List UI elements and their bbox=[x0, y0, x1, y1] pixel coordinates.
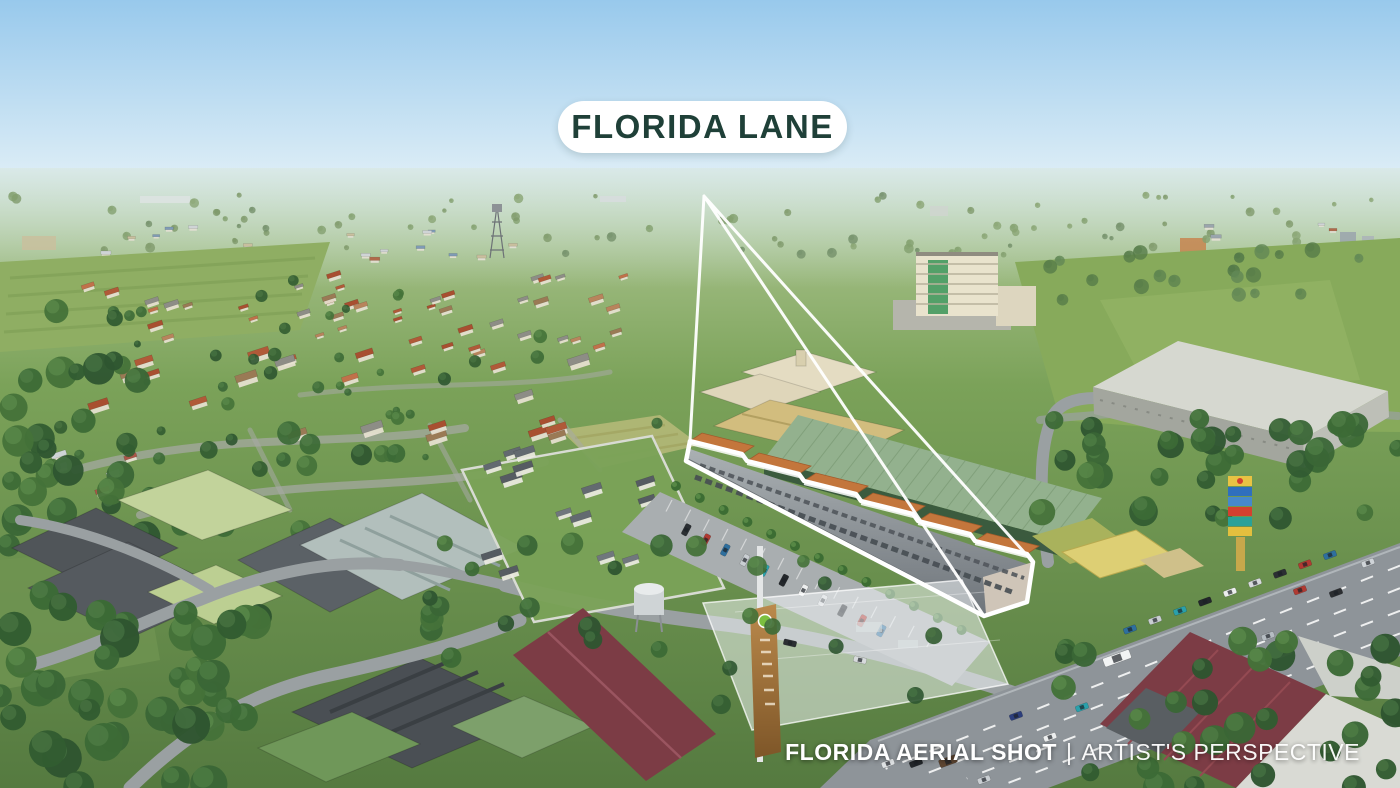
tree-highlight bbox=[80, 700, 92, 712]
tree-highlight bbox=[313, 382, 320, 389]
tree-highlight bbox=[1332, 202, 1335, 205]
tree-highlight bbox=[253, 462, 262, 471]
tree-highlight bbox=[2, 395, 17, 410]
tree-highlight bbox=[199, 661, 217, 679]
tree-highlight bbox=[1246, 208, 1251, 213]
tree-highlight bbox=[1031, 500, 1046, 515]
tree-highlight bbox=[318, 226, 323, 231]
tree-highlight bbox=[256, 290, 263, 297]
tree-highlight bbox=[175, 708, 196, 729]
caption-subtitle: ARTIST'S PERSPECTIVE bbox=[1081, 739, 1360, 766]
caption-separator: | bbox=[1066, 739, 1072, 766]
tree-highlight bbox=[652, 642, 661, 651]
tree-highlight bbox=[917, 201, 921, 205]
tree-highlight bbox=[828, 248, 833, 253]
tree-highlight bbox=[1344, 723, 1359, 738]
tree-highlight bbox=[607, 233, 612, 238]
tree-highlight bbox=[749, 557, 760, 568]
tree-highlight bbox=[201, 442, 211, 452]
tree-highlight bbox=[375, 446, 384, 455]
tree-highlight bbox=[392, 412, 399, 419]
tree-highlight bbox=[1056, 451, 1068, 463]
tree-highlight bbox=[915, 248, 918, 251]
tree-highlight bbox=[1235, 253, 1241, 259]
tree-highlight bbox=[982, 234, 985, 237]
tree-highlight bbox=[1355, 254, 1360, 259]
house bbox=[1211, 235, 1222, 241]
tree-highlight bbox=[880, 192, 884, 196]
tree-highlight bbox=[108, 311, 117, 320]
tree-highlight bbox=[1369, 198, 1371, 200]
tree-highlight bbox=[1206, 506, 1215, 515]
tree-highlight bbox=[377, 369, 381, 373]
location-label-text: FLORIDA LANE bbox=[571, 108, 833, 146]
tree-highlight bbox=[1013, 229, 1017, 233]
location-label-pill: FLORIDA LANE bbox=[558, 101, 847, 153]
tree-highlight bbox=[1169, 275, 1176, 282]
tree-highlight bbox=[1068, 224, 1071, 227]
tree-highlight bbox=[1362, 667, 1374, 679]
tree-highlight bbox=[1163, 222, 1166, 225]
tree-highlight bbox=[1161, 432, 1171, 442]
tree-highlight bbox=[1186, 777, 1197, 788]
tree-highlight bbox=[1306, 243, 1315, 252]
tree-highlight bbox=[772, 236, 775, 239]
tree-highlight bbox=[1087, 275, 1094, 282]
tree-highlight bbox=[55, 421, 62, 428]
tree-highlight bbox=[532, 351, 539, 358]
tree-highlight bbox=[249, 207, 253, 211]
tree-highlight bbox=[219, 382, 225, 388]
tree-highlight bbox=[778, 241, 782, 245]
tree-highlight bbox=[1135, 280, 1143, 288]
tree-highlight bbox=[211, 350, 217, 356]
tree-highlight bbox=[393, 407, 397, 411]
tree-highlight bbox=[1275, 250, 1280, 255]
tree-highlight bbox=[2, 706, 16, 720]
tree-highlight bbox=[298, 456, 309, 467]
tree-highlight bbox=[518, 536, 529, 547]
tree-highlight bbox=[729, 214, 734, 219]
tree-highlight bbox=[1233, 288, 1241, 296]
house bbox=[153, 235, 160, 239]
tree-highlight bbox=[713, 696, 724, 707]
house bbox=[416, 246, 425, 251]
tree-highlight bbox=[1232, 271, 1239, 278]
tree-highlight bbox=[466, 562, 474, 570]
tree-highlight bbox=[279, 422, 292, 435]
tree-highlight bbox=[1001, 252, 1004, 255]
tree-highlight bbox=[223, 216, 226, 219]
tree-highlight bbox=[263, 225, 267, 229]
tree-highlight bbox=[1056, 645, 1067, 656]
tree-highlight bbox=[335, 221, 339, 225]
tree-highlight bbox=[110, 689, 127, 706]
tree-highlight bbox=[1228, 265, 1235, 272]
tree-highlight bbox=[515, 194, 520, 199]
tree-highlight bbox=[499, 616, 508, 625]
tree-highlight bbox=[1391, 441, 1400, 450]
tree-highlight bbox=[1288, 451, 1303, 466]
tree-highlight bbox=[443, 209, 445, 211]
tree-highlight bbox=[342, 305, 347, 310]
tree-highlight bbox=[1167, 692, 1179, 704]
tree-highlight bbox=[48, 358, 65, 375]
tree-highlight bbox=[175, 602, 188, 615]
tree-highlight bbox=[20, 479, 36, 495]
tree-highlight bbox=[1198, 471, 1208, 481]
tree-highlight bbox=[797, 250, 802, 255]
tree-highlight bbox=[785, 209, 789, 213]
tree-highlight bbox=[1231, 195, 1233, 197]
tree-highlight bbox=[277, 453, 285, 461]
tree-highlight bbox=[1230, 628, 1246, 644]
tree-highlight bbox=[1082, 218, 1085, 221]
tree-highlight bbox=[148, 698, 167, 717]
house bbox=[128, 236, 136, 240]
tree-highlight bbox=[103, 620, 125, 642]
tree-highlight bbox=[521, 598, 532, 609]
tree-highlight bbox=[215, 209, 218, 212]
tree-highlight bbox=[222, 398, 229, 405]
tree-highlight bbox=[190, 199, 195, 204]
tree-highlight bbox=[96, 646, 110, 660]
tree-highlight bbox=[70, 364, 79, 373]
tree-highlight bbox=[1134, 497, 1147, 510]
tree-highlight bbox=[1130, 709, 1142, 721]
tree-highlight bbox=[227, 434, 234, 441]
tree-highlight bbox=[55, 457, 72, 474]
tree-highlight bbox=[265, 367, 272, 374]
tree-highlight bbox=[146, 243, 151, 248]
tree-highlight bbox=[137, 307, 143, 313]
tree-highlight bbox=[51, 594, 67, 610]
tree-highlight bbox=[1084, 433, 1097, 446]
tree-highlight bbox=[345, 389, 349, 393]
tree-highlight bbox=[352, 445, 364, 457]
tree-highlight bbox=[193, 626, 213, 646]
tree-highlight bbox=[595, 235, 598, 238]
tree-highlight bbox=[849, 235, 854, 240]
tree-highlight bbox=[723, 661, 731, 669]
tree-highlight bbox=[1271, 508, 1284, 521]
tree-highlight bbox=[38, 440, 49, 451]
tree-highlight bbox=[0, 614, 19, 633]
tree-highlight bbox=[994, 222, 998, 226]
tree-highlight bbox=[1079, 463, 1094, 478]
tree-highlight bbox=[125, 311, 131, 317]
tree-highlight bbox=[652, 535, 664, 547]
tree-highlight bbox=[580, 618, 593, 631]
house bbox=[449, 253, 457, 258]
tree-highlight bbox=[1203, 236, 1207, 240]
tree-highlight bbox=[1216, 510, 1226, 520]
tree-highlight bbox=[217, 699, 231, 713]
tree-highlight bbox=[49, 499, 66, 516]
tree-highlight bbox=[157, 427, 162, 432]
tree-highlight bbox=[344, 245, 347, 248]
tree-highlight bbox=[1124, 251, 1131, 258]
tree-highlight bbox=[908, 688, 917, 697]
tree-highlight bbox=[968, 207, 972, 211]
tree-highlight bbox=[99, 478, 114, 493]
house bbox=[1329, 228, 1337, 232]
tree-highlight bbox=[1225, 446, 1236, 457]
tree-highlight bbox=[193, 767, 214, 788]
tree-highlight bbox=[1329, 651, 1344, 666]
house bbox=[188, 225, 197, 230]
tree-highlight bbox=[241, 216, 245, 220]
house bbox=[347, 233, 355, 237]
tree-highlight bbox=[798, 556, 805, 563]
tree-highlight bbox=[118, 434, 130, 446]
tree-highlight bbox=[8, 648, 25, 665]
tree-highlight bbox=[1143, 192, 1147, 196]
tree-highlight bbox=[1010, 224, 1015, 229]
tree-highlight bbox=[71, 681, 91, 701]
tree-highlight bbox=[32, 732, 53, 753]
tree-highlight bbox=[1193, 659, 1204, 670]
tree-highlight bbox=[1058, 295, 1064, 301]
tree-highlight bbox=[1273, 208, 1277, 212]
tree-highlight bbox=[170, 668, 182, 680]
house bbox=[423, 230, 432, 235]
tree-highlight bbox=[563, 250, 567, 254]
tree-highlight bbox=[154, 453, 161, 460]
tree-highlight bbox=[1377, 760, 1388, 771]
tree-highlight bbox=[38, 671, 54, 687]
tree-highlight bbox=[1155, 270, 1162, 277]
tree-highlight bbox=[1110, 236, 1112, 238]
house bbox=[380, 249, 388, 253]
tree-highlight bbox=[88, 601, 105, 618]
tree-highlight bbox=[1157, 195, 1160, 198]
tree-highlight bbox=[1116, 223, 1121, 228]
tree-highlight bbox=[163, 768, 179, 784]
tree-highlight bbox=[1055, 256, 1061, 262]
tree-highlight bbox=[109, 462, 124, 477]
tree-highlight bbox=[1257, 709, 1269, 721]
tree-highlight bbox=[1053, 676, 1067, 690]
tree-highlight bbox=[1031, 225, 1034, 228]
tree-highlight bbox=[134, 341, 138, 345]
tree-highlight bbox=[439, 373, 446, 380]
tree-highlight bbox=[907, 240, 911, 244]
tree-highlight bbox=[1358, 505, 1367, 514]
tree-highlight bbox=[429, 216, 433, 220]
tree-highlight bbox=[88, 725, 109, 746]
tree-highlight bbox=[180, 680, 195, 695]
aerial-render: FLORIDA LANE FLORIDA AERIAL SHOT | ARTIS… bbox=[0, 0, 1400, 788]
tree-highlight bbox=[101, 246, 105, 250]
tree-highlight bbox=[85, 355, 102, 372]
tree-highlight bbox=[1331, 412, 1346, 427]
tree-highlight bbox=[146, 221, 150, 225]
tree-highlight bbox=[1286, 221, 1290, 225]
tree-highlight bbox=[512, 213, 517, 218]
tree-highlight bbox=[927, 628, 936, 637]
tree-highlight bbox=[544, 234, 549, 239]
tree-highlight bbox=[32, 582, 48, 598]
tree-highlight bbox=[1191, 410, 1202, 421]
caption: FLORIDA AERIAL SHOT | ARTIST'S PERSPECTI… bbox=[785, 739, 1360, 766]
tree-highlight bbox=[830, 640, 838, 648]
tree-highlight bbox=[326, 312, 331, 317]
sky bbox=[0, 0, 1400, 190]
tree-highlight bbox=[1293, 232, 1298, 237]
tree-highlight bbox=[1226, 714, 1243, 731]
tree-highlight bbox=[249, 354, 255, 360]
tree-highlight bbox=[1290, 421, 1304, 435]
tree-highlight bbox=[219, 611, 235, 627]
tree-highlight bbox=[1074, 643, 1088, 657]
tree-highlight bbox=[1207, 230, 1212, 235]
tree-highlight bbox=[127, 369, 141, 383]
tree-highlight bbox=[9, 192, 14, 197]
house bbox=[509, 243, 518, 248]
tree-highlight bbox=[20, 369, 33, 382]
tree-highlight bbox=[609, 561, 617, 569]
tree-highlight bbox=[289, 276, 295, 282]
tree-highlight bbox=[388, 445, 398, 455]
tree-highlight bbox=[1373, 635, 1389, 651]
tree-highlight bbox=[1046, 412, 1056, 422]
tree-highlight bbox=[1194, 691, 1208, 705]
tree-highlight bbox=[424, 591, 432, 599]
tree-highlight bbox=[237, 224, 239, 226]
tree-highlight bbox=[5, 427, 22, 444]
tree-highlight bbox=[386, 411, 391, 416]
tree-highlight bbox=[1149, 243, 1154, 248]
tree-highlight bbox=[1307, 439, 1323, 455]
tree-highlight bbox=[1035, 203, 1038, 206]
house bbox=[361, 253, 370, 258]
house bbox=[1204, 224, 1214, 230]
tree-highlight bbox=[408, 224, 411, 227]
tree-highlight bbox=[123, 232, 128, 237]
tree-highlight bbox=[1103, 234, 1106, 237]
tree-highlight bbox=[1082, 418, 1094, 430]
tree-highlight bbox=[21, 452, 33, 464]
tree-highlight bbox=[237, 193, 240, 196]
tree-highlight bbox=[233, 239, 236, 242]
tree-highlight bbox=[585, 631, 595, 641]
tree-highlight bbox=[280, 323, 286, 329]
tree-highlight bbox=[1383, 700, 1399, 716]
tree-highlight bbox=[449, 199, 452, 202]
tree-highlight bbox=[406, 410, 411, 415]
tree-highlight bbox=[301, 435, 312, 446]
tree-highlight bbox=[442, 648, 453, 659]
tree-highlight bbox=[470, 356, 477, 363]
tree-highlight bbox=[1226, 427, 1235, 436]
tree-highlight bbox=[4, 472, 14, 482]
tree-highlight bbox=[336, 382, 341, 387]
tree-highlight bbox=[438, 536, 447, 545]
tree-highlight bbox=[394, 291, 400, 297]
house bbox=[370, 257, 380, 263]
tree-highlight bbox=[819, 577, 827, 585]
tree-highlight bbox=[534, 330, 542, 338]
house bbox=[165, 227, 173, 232]
tree-highlight bbox=[875, 197, 879, 201]
tree-highlight bbox=[73, 410, 86, 423]
tree-highlight bbox=[743, 609, 752, 618]
tree-highlight bbox=[75, 450, 81, 456]
tree-highlight bbox=[1163, 195, 1166, 198]
tree-highlight bbox=[1247, 268, 1255, 276]
tree-highlight bbox=[1296, 289, 1302, 295]
tree-highlight bbox=[1277, 631, 1290, 644]
tree-highlight bbox=[765, 619, 774, 628]
tree-highlight bbox=[646, 225, 650, 229]
house bbox=[477, 255, 486, 260]
tree-highlight bbox=[1192, 428, 1206, 442]
tree-highlight bbox=[652, 418, 658, 424]
house bbox=[1318, 223, 1325, 227]
tree-highlight bbox=[335, 353, 340, 358]
tree-highlight bbox=[1134, 246, 1142, 254]
tree-highlight bbox=[1271, 419, 1284, 432]
tree-highlight bbox=[269, 348, 276, 355]
tree-highlight bbox=[423, 454, 427, 458]
tree-highlight bbox=[594, 194, 596, 196]
tree-highlight bbox=[687, 537, 699, 549]
tree-highlight bbox=[1251, 289, 1256, 294]
tree-highlight bbox=[1249, 648, 1262, 661]
tree-highlight bbox=[1256, 245, 1264, 253]
tree-highlight bbox=[851, 244, 854, 247]
tree-highlight bbox=[563, 534, 575, 546]
tree-highlight bbox=[1008, 244, 1010, 246]
tree-highlight bbox=[349, 214, 353, 218]
tree-highlight bbox=[1152, 469, 1162, 479]
caption-title: FLORIDA AERIAL SHOT bbox=[785, 739, 1057, 766]
tree-highlight bbox=[472, 225, 475, 228]
tree-highlight bbox=[108, 206, 113, 211]
tree-highlight bbox=[1044, 260, 1052, 268]
tree-highlight bbox=[955, 247, 959, 251]
tree-highlight bbox=[46, 300, 59, 313]
